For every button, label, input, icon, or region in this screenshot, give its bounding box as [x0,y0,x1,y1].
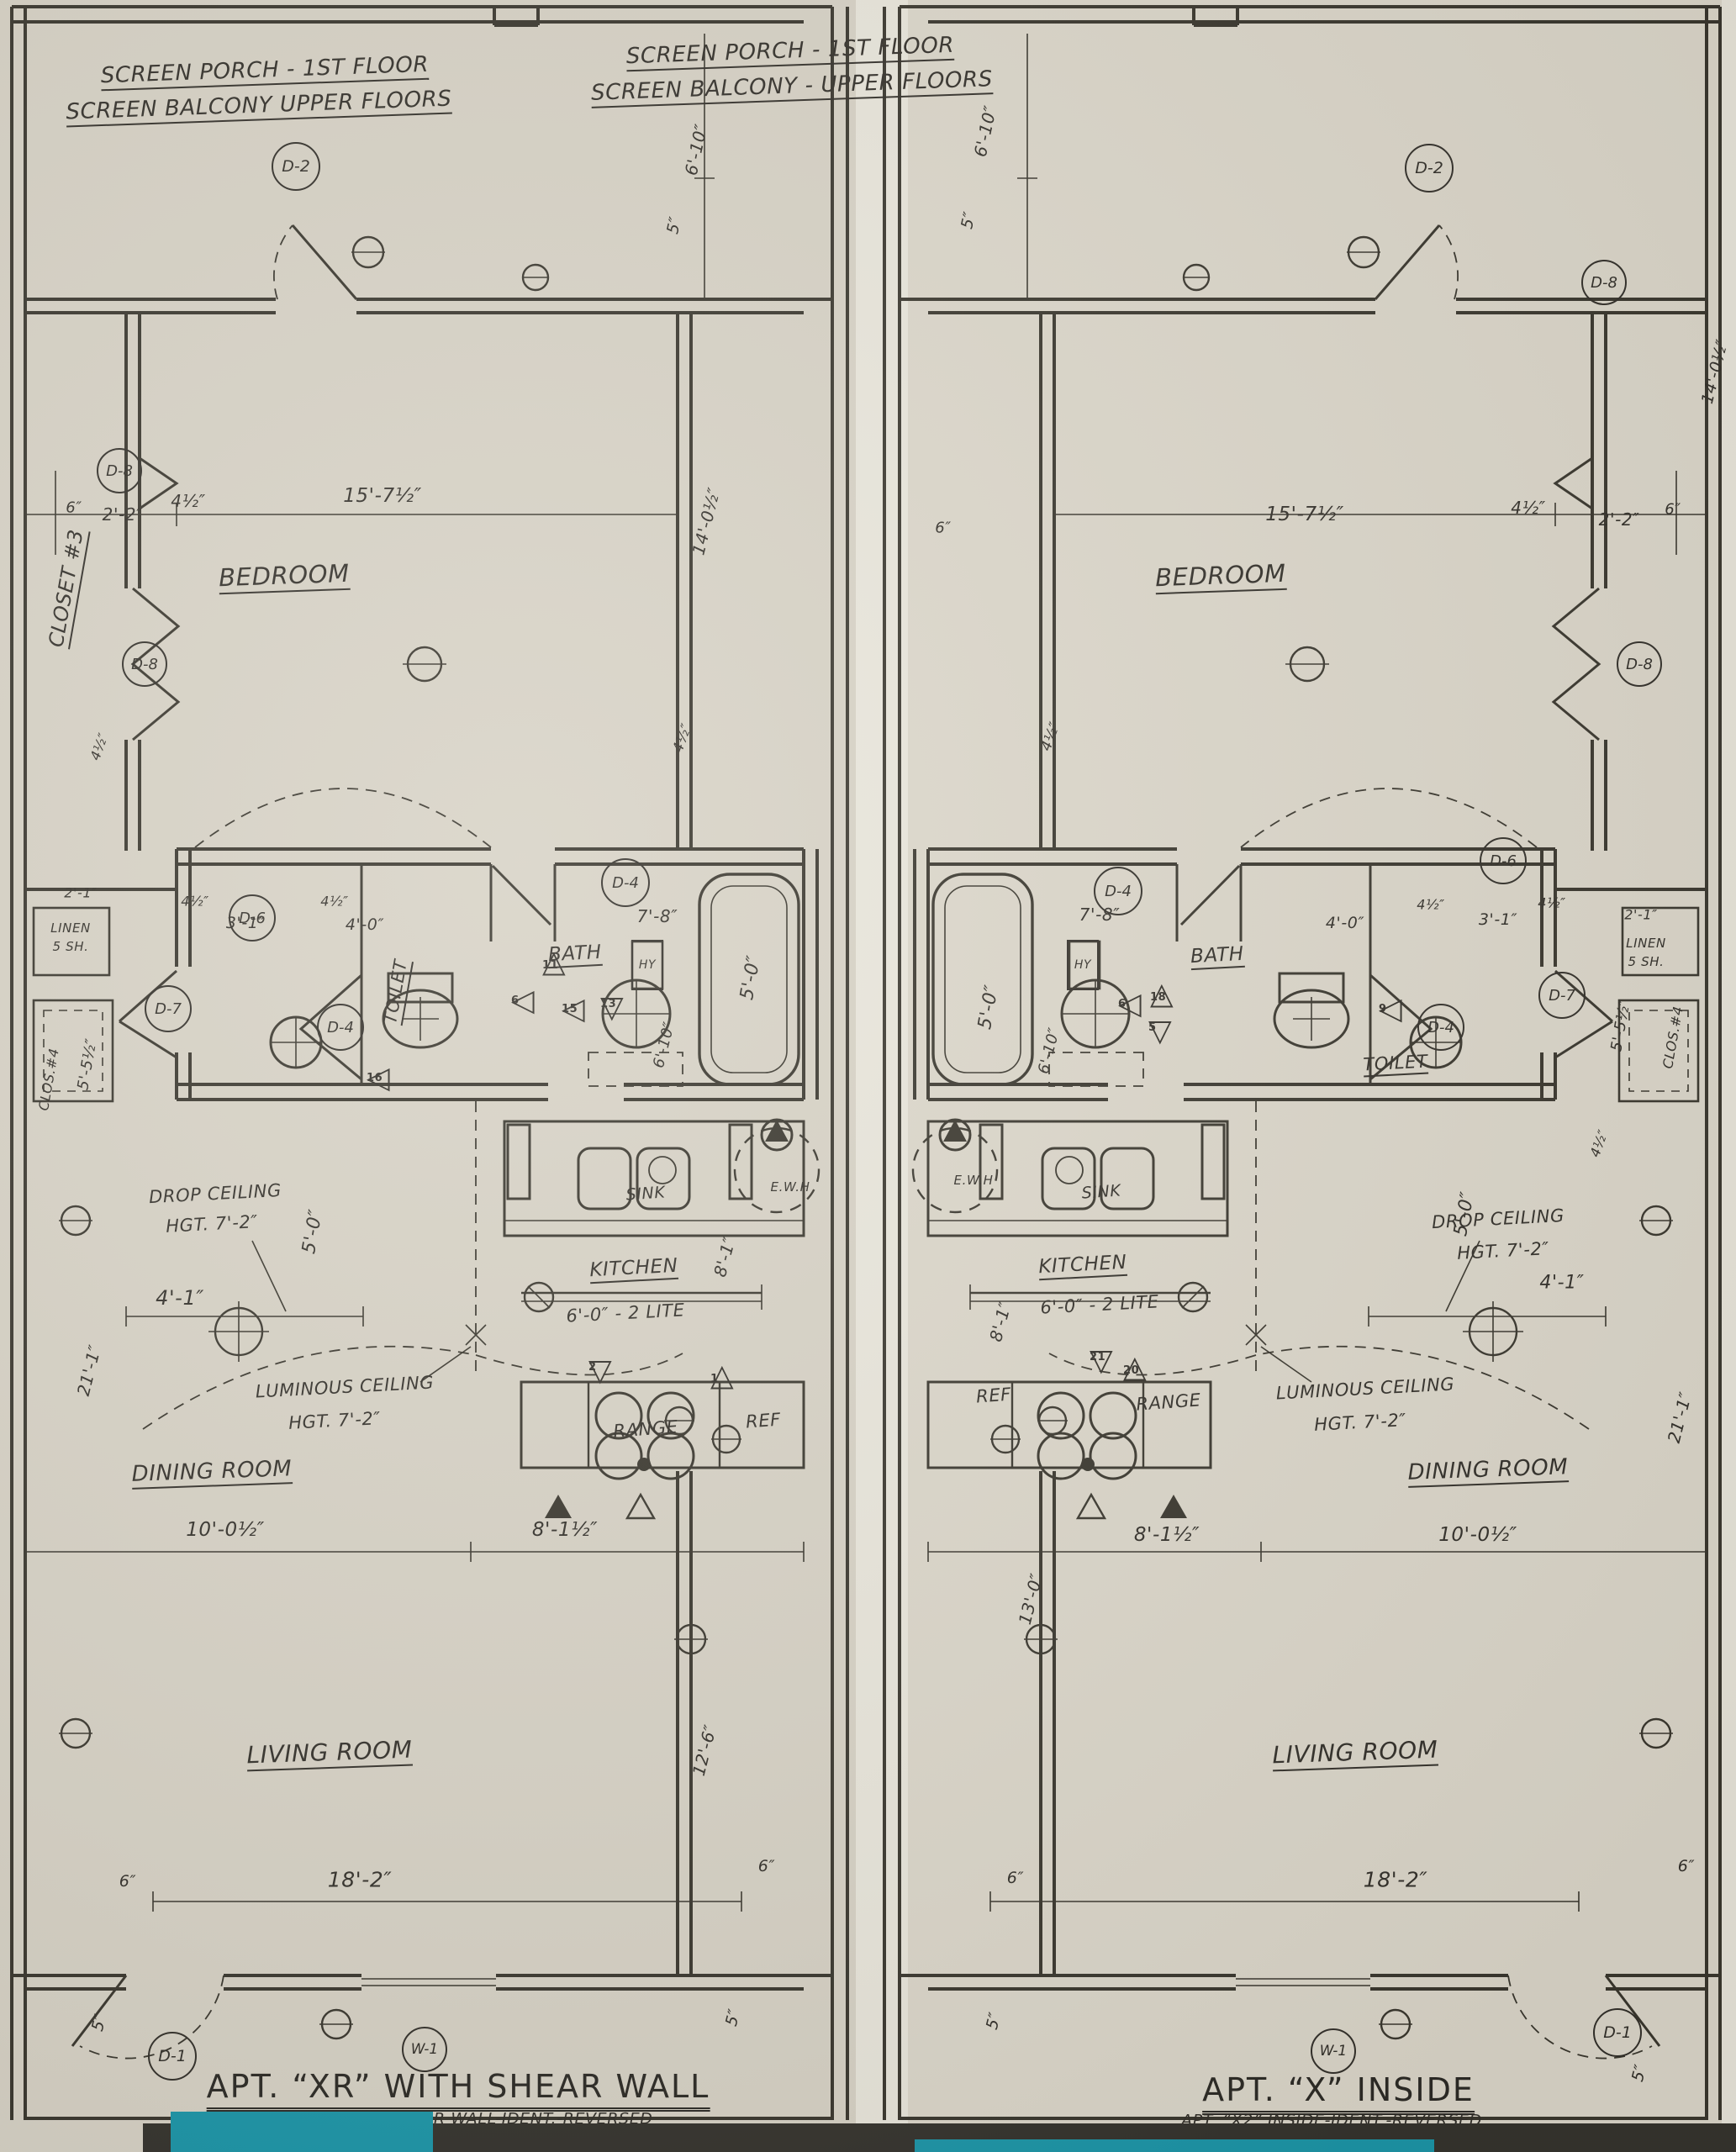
blueprint-sheet: SCREEN PORCH - 1ST FLOORSCREEN BALCONY U… [0,0,1736,2152]
floor-plan-linework [0,0,1736,2152]
teal-strip-left [171,2112,433,2152]
left-plan-geometry [12,7,847,2120]
right-plan-geometry [884,7,1720,2120]
teal-strip-right [915,2139,1434,2152]
